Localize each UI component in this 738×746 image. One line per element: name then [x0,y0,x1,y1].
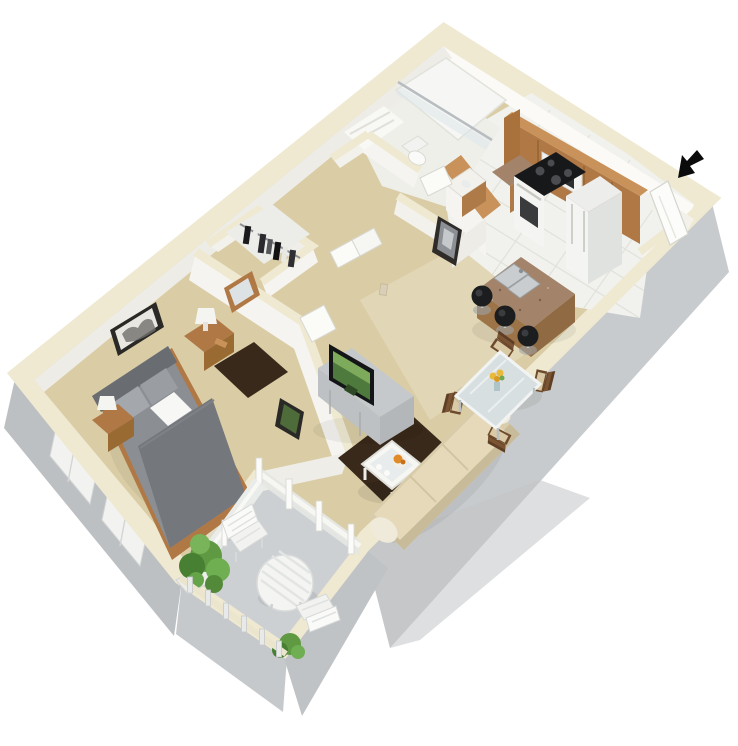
lamp-lower [97,396,117,410]
entry-arrow-icon [678,150,704,178]
floor-plan-render [0,0,738,746]
light-switch [379,284,387,296]
faucet [519,269,523,273]
floor-plan-svg [0,0,738,746]
lamp-upper [195,308,217,324]
refrigerator [566,176,622,284]
